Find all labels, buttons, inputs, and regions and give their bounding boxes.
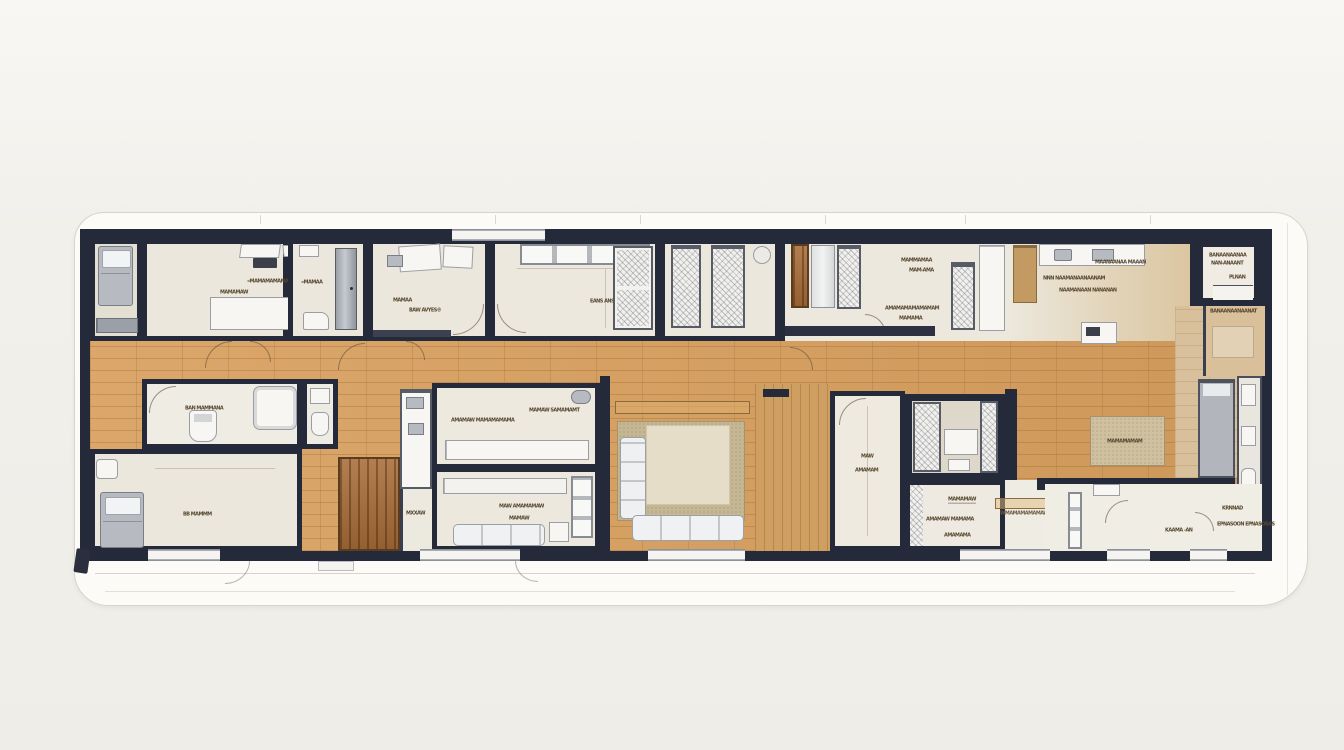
door-sill bbox=[318, 561, 354, 571]
door-arc bbox=[1105, 500, 1128, 523]
window bbox=[452, 229, 545, 241]
wall-stub bbox=[763, 389, 789, 397]
room-kitchen: MAMMAMAA MAM-AMA AMAMAMAMAMAMAM MAMAMA M… bbox=[780, 239, 1195, 341]
sink bbox=[310, 388, 330, 404]
fridge-highlight bbox=[1203, 384, 1230, 396]
room-label: MAW bbox=[861, 454, 873, 459]
room-label: MAMAMAW bbox=[220, 290, 248, 295]
room-label: MAMAW bbox=[509, 516, 529, 521]
glass-door bbox=[1068, 492, 1082, 549]
sink bbox=[1241, 384, 1256, 406]
room-label: BB MAMMM bbox=[183, 512, 212, 517]
floor-plan: «MAMAMAMAMA MAMA MAMAMAW «MAMAA MAMAA BA… bbox=[80, 229, 1272, 561]
island-counter bbox=[1081, 322, 1117, 344]
side-table bbox=[549, 522, 569, 542]
door-arc bbox=[839, 398, 866, 425]
sofa-vertical bbox=[620, 437, 646, 519]
floorplan-card: «MAMAMAMAMA MAMA MAMAMAW «MAMAA MAMAA BA… bbox=[74, 212, 1308, 606]
room-label: MXXAW bbox=[406, 511, 425, 516]
room-label: AMAMAW MAMAMAMAMA bbox=[451, 418, 514, 423]
sketch-line bbox=[155, 468, 275, 469]
window-unit bbox=[571, 476, 593, 538]
bed-line bbox=[101, 273, 130, 274]
wall-closet-right bbox=[1005, 389, 1017, 480]
ruler-tick bbox=[260, 215, 261, 224]
window bbox=[1190, 549, 1227, 561]
room-study: MAMAA BAW AVYES® bbox=[368, 239, 490, 341]
bed-line bbox=[103, 521, 142, 522]
closet-table bbox=[944, 429, 978, 455]
fridge-unit bbox=[1198, 379, 1235, 478]
card-inner-line bbox=[1287, 223, 1288, 595]
shelf-tower bbox=[400, 389, 432, 489]
bath-column bbox=[1237, 376, 1262, 501]
console-table bbox=[615, 401, 750, 414]
tall-cabinets bbox=[979, 245, 1005, 331]
ruler-tick bbox=[825, 215, 826, 224]
room-label: AMAMAW MAMAMA bbox=[926, 517, 974, 522]
page: { "colors": { "wall": "#252a3a", "wood_f… bbox=[0, 0, 1344, 750]
room-bathroom: BAN MAMMANA bbox=[142, 379, 302, 449]
door-arc bbox=[205, 341, 232, 368]
fridge-panel bbox=[811, 245, 835, 308]
wall-living-left bbox=[600, 376, 610, 551]
shelf-box bbox=[299, 245, 319, 257]
door-arc bbox=[250, 341, 271, 362]
wall-end-mark bbox=[73, 548, 90, 574]
room-kids: MAMAMAW AMAMAW MAMAMA AMAMAMA bbox=[905, 480, 1005, 551]
shelf-tower bbox=[671, 245, 701, 328]
door-arc bbox=[1195, 512, 1214, 531]
sink bbox=[1054, 249, 1072, 261]
window bbox=[648, 549, 745, 561]
terrace-line bbox=[105, 591, 1235, 592]
room-label: BAW AVYES® bbox=[409, 308, 441, 313]
desk bbox=[398, 244, 442, 273]
closet-box bbox=[948, 459, 970, 471]
wardrobe bbox=[613, 246, 653, 330]
door-arc bbox=[497, 304, 526, 333]
pantry-strip: BANAANAANAANAT bbox=[1203, 306, 1265, 376]
entry-counter bbox=[1093, 484, 1120, 496]
shelf-item bbox=[408, 423, 424, 435]
door-arc bbox=[453, 304, 484, 335]
bed-pillow bbox=[105, 497, 141, 515]
room-label: MAMAA bbox=[393, 298, 412, 303]
toilet-tank bbox=[194, 414, 212, 422]
room-office: «MAMAMAMAMA MAMA MAMAMAW bbox=[142, 239, 288, 341]
window bbox=[1107, 549, 1150, 561]
toilet bbox=[311, 412, 329, 436]
wood-wardrobe bbox=[338, 457, 400, 551]
room-label: KAAMA -AN bbox=[1165, 528, 1192, 533]
closet-shelf bbox=[980, 401, 998, 473]
room-lounge: MAW AMAMAMAW MAMAW bbox=[432, 467, 600, 551]
ruler-tick bbox=[495, 215, 496, 224]
plant-icon bbox=[753, 246, 771, 264]
door-arc bbox=[149, 386, 176, 413]
closet-shelf bbox=[913, 402, 941, 472]
sofa-horizontal bbox=[632, 515, 744, 541]
tall-door-panel bbox=[335, 248, 357, 330]
bed bbox=[98, 246, 133, 306]
room-label: BAN MAMMANA bbox=[185, 406, 223, 411]
wood-cabinet bbox=[1013, 245, 1037, 303]
toilet bbox=[189, 410, 217, 442]
room-entry: KRNNAD KAAMA -AN EPNASOON EPNASOBAS bbox=[1045, 484, 1262, 551]
rug-label: MAMAMAMAM bbox=[1107, 439, 1142, 444]
wardrobe-shelf bbox=[617, 250, 649, 286]
dresser bbox=[96, 318, 138, 333]
door-arc bbox=[338, 343, 365, 370]
appliance-tower bbox=[951, 262, 975, 330]
room-tv-study: AMAMAW MAMAMAMAMA MAMAW SAMAMAMT bbox=[432, 383, 600, 469]
rug-inner-platform bbox=[646, 425, 730, 505]
room-label: NNN NAAMANAANAANAM bbox=[1043, 276, 1105, 281]
ruler-tick bbox=[1150, 215, 1151, 224]
room-label: «MAMAMAMAMA bbox=[247, 279, 288, 284]
desk bbox=[1213, 285, 1253, 300]
wardrobe-shelf bbox=[617, 290, 649, 326]
terrace-line bbox=[95, 573, 1255, 574]
desk-panel bbox=[239, 244, 281, 258]
sideboard-label: WMAMAMAMAMAW bbox=[1000, 511, 1048, 516]
bench-sofa bbox=[453, 524, 545, 546]
wood-nook bbox=[755, 384, 830, 551]
room-utility: «MAMAA bbox=[288, 239, 368, 341]
room-label: NAN-ANAANT bbox=[1211, 261, 1243, 266]
shower bbox=[253, 386, 297, 430]
pantry-shelf bbox=[1212, 326, 1254, 358]
wall-shelf bbox=[373, 330, 451, 337]
corridor-rug: MAMAMAMAM bbox=[1090, 416, 1165, 466]
door-arc bbox=[406, 341, 425, 360]
window bbox=[420, 549, 520, 561]
window bbox=[960, 549, 1050, 561]
room-label: MAMAW SAMAMAMT bbox=[529, 408, 579, 413]
laptop bbox=[253, 258, 277, 268]
window bbox=[148, 549, 220, 561]
hatch-strip bbox=[910, 485, 923, 546]
room-label: AMAMAMA bbox=[944, 533, 970, 538]
room-label: MAMMAMAA bbox=[901, 258, 932, 263]
room-label: PLNAN bbox=[1229, 275, 1245, 280]
room-label: MAM-AMA bbox=[909, 268, 934, 273]
ruler-tick bbox=[640, 215, 641, 224]
room-label: MAW AMAMAMAW bbox=[499, 504, 544, 509]
cabinet-tower bbox=[837, 245, 861, 309]
room-closet bbox=[905, 394, 1005, 480]
room-bedroom-bottomleft: BB MAMMM bbox=[90, 449, 302, 551]
room-label: NAAMANAAN NANANAN bbox=[1059, 288, 1117, 293]
room-hall: MAW AMAMAM bbox=[830, 391, 905, 551]
room-label: EPNASOON EPNASOBAS bbox=[1217, 522, 1275, 527]
door-arc bbox=[515, 561, 538, 582]
room-label: MAMAMAW bbox=[948, 497, 976, 504]
room-label: BANAANAANAANAT bbox=[1210, 309, 1257, 314]
room-wc bbox=[302, 379, 338, 449]
shelf-strip: MXXAW bbox=[400, 489, 435, 551]
room-label: BANAANAANAA bbox=[1209, 253, 1246, 258]
room-label: «MAMAA bbox=[301, 280, 322, 285]
bed bbox=[100, 492, 144, 548]
room-label: AMAMAM bbox=[855, 468, 878, 473]
wood-door bbox=[791, 244, 809, 308]
wall-fixture bbox=[571, 390, 591, 404]
shelf-tower bbox=[711, 245, 745, 328]
room-shelving-hall bbox=[660, 239, 780, 341]
bed-pillow bbox=[102, 250, 131, 268]
cabinet-row bbox=[443, 478, 567, 494]
ruler-tick bbox=[965, 215, 966, 224]
room-label: MAMAMA bbox=[899, 316, 922, 321]
room-label: AMAMAMAMAMAMAM bbox=[885, 306, 939, 311]
room-corner-study: BANAANAANAA NAN-ANAANT PLNAN bbox=[1195, 239, 1262, 306]
room-label: MAANAANAA MAAAN bbox=[1095, 260, 1146, 265]
door-arc bbox=[790, 347, 813, 370]
wall-segment bbox=[785, 326, 935, 336]
door-handle bbox=[350, 287, 353, 290]
room-bedroom-topleft bbox=[90, 239, 142, 341]
shelf bbox=[1241, 426, 1256, 446]
shelf-item bbox=[406, 397, 424, 409]
long-counter bbox=[445, 440, 589, 460]
room-bedroom2: EANS ANSINYANA NVN bbox=[490, 239, 660, 341]
door-arc bbox=[225, 561, 250, 584]
desk bbox=[442, 245, 473, 269]
room-label: KRNNAD bbox=[1222, 506, 1243, 511]
fixture bbox=[303, 312, 329, 330]
nightstand bbox=[96, 459, 118, 479]
island-item bbox=[1086, 327, 1100, 336]
chair bbox=[387, 255, 403, 267]
